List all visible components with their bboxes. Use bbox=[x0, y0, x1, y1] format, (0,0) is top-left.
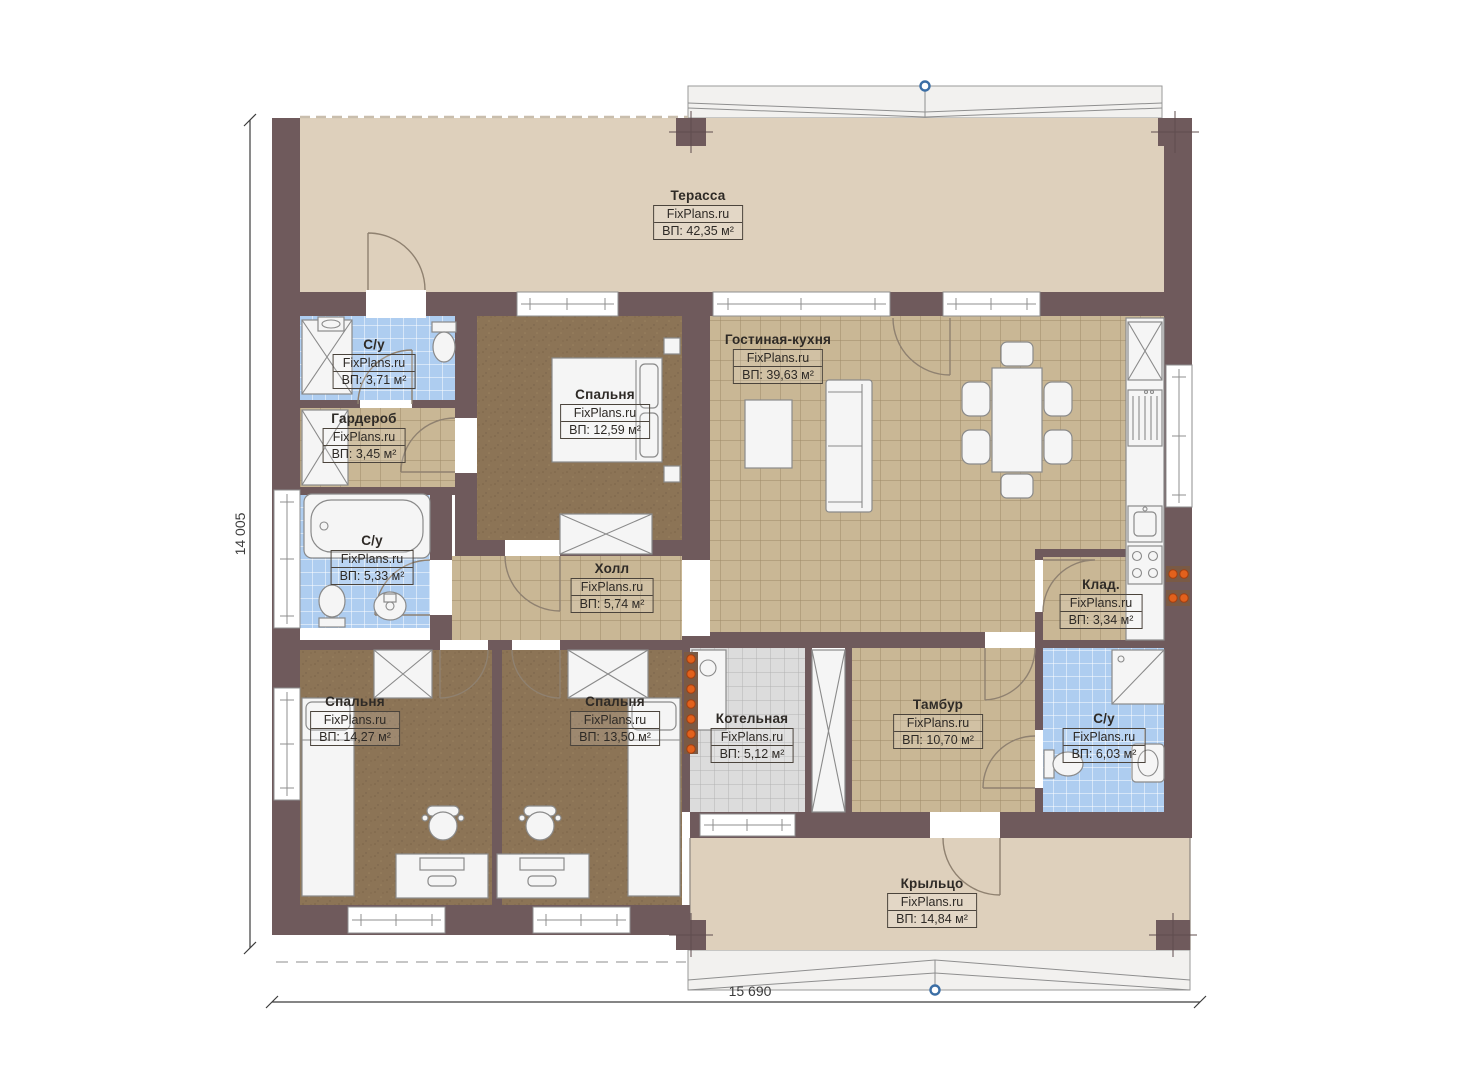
sink-icon bbox=[318, 317, 344, 331]
watermark-text: FixPlans.ru bbox=[734, 350, 822, 367]
room-name: Тамбур bbox=[893, 697, 983, 712]
room-name: Спальня bbox=[570, 694, 660, 709]
room-area: ВП: 6,03 м² bbox=[1064, 746, 1145, 762]
watermark-text: FixPlans.ru bbox=[888, 894, 976, 911]
room-area: ВП: 5,12 м² bbox=[712, 746, 793, 762]
room-name: Гостиная-кухня bbox=[725, 332, 831, 347]
room-info-box: FixPlans.ru ВП: 13,50 м² bbox=[570, 711, 660, 746]
room-name: С/у bbox=[1063, 711, 1146, 726]
watermark-text: FixPlans.ru bbox=[894, 715, 982, 732]
room-info-box: FixPlans.ru ВП: 14,84 м² bbox=[887, 893, 977, 928]
window bbox=[700, 814, 795, 836]
room-label-bathroom-left: С/у FixPlans.ru ВП: 5,33 м² bbox=[331, 533, 414, 585]
room-area: ВП: 5,74 м² bbox=[572, 596, 653, 612]
room-label-living-kitchen: Гостиная-кухня FixPlans.ru ВП: 39,63 м² bbox=[725, 332, 831, 384]
shower-icon bbox=[1112, 650, 1164, 704]
roof-marker-bottom bbox=[931, 986, 940, 995]
room-label-storage: Клад. FixPlans.ru ВП: 3,34 м² bbox=[1060, 577, 1143, 629]
window bbox=[274, 688, 300, 800]
room-area: ВП: 10,70 м² bbox=[894, 732, 982, 748]
room-area: ВП: 12,59 м² bbox=[561, 422, 649, 438]
window bbox=[943, 292, 1040, 316]
room-info-box: FixPlans.ru ВП: 5,74 м² bbox=[571, 578, 654, 613]
dimension-left: 14 005 bbox=[232, 513, 248, 556]
room-label-bedroom-middle: Спальня FixPlans.ru ВП: 13,50 м² bbox=[570, 694, 660, 746]
toilet-icon bbox=[319, 585, 345, 627]
room-info-box: FixPlans.ru ВП: 5,12 м² bbox=[711, 728, 794, 763]
room-name: Крыльцо bbox=[887, 876, 977, 891]
room-info-box: FixPlans.ru ВП: 3,71 м² bbox=[333, 354, 416, 389]
watermark-text: FixPlans.ru bbox=[572, 579, 653, 596]
room-label-porch: Крыльцо FixPlans.ru ВП: 14,84 м² bbox=[887, 876, 977, 928]
pedestal-sink-icon bbox=[374, 592, 406, 620]
watermark-text: FixPlans.ru bbox=[324, 429, 405, 446]
room-label-bedroom-top: Спальня FixPlans.ru ВП: 12,59 м² bbox=[560, 387, 650, 439]
room-area: ВП: 14,27 м² bbox=[311, 729, 399, 745]
floor-plan-canvas: Терасса FixPlans.ru ВП: 42,35 м² С/у Fix… bbox=[0, 0, 1474, 1080]
closet-icon bbox=[568, 650, 648, 698]
window bbox=[274, 490, 300, 628]
roof-marker-top bbox=[921, 82, 930, 91]
watermark-text: FixPlans.ru bbox=[1061, 595, 1142, 612]
room-name: Холл bbox=[571, 561, 654, 576]
room-area: ВП: 5,33 м² bbox=[332, 568, 413, 584]
roof-overhang-top bbox=[688, 82, 1162, 119]
closet-icon bbox=[812, 650, 845, 812]
room-name: Спальня bbox=[310, 694, 400, 709]
room-label-bathroom-right: С/у FixPlans.ru ВП: 6,03 м² bbox=[1063, 711, 1146, 763]
watermark-text: FixPlans.ru bbox=[332, 551, 413, 568]
floor-plan-svg bbox=[0, 0, 1474, 1080]
watermark-text: FixPlans.ru bbox=[311, 712, 399, 729]
room-name: С/у bbox=[331, 533, 414, 548]
window bbox=[533, 907, 630, 933]
closet-icon bbox=[560, 514, 652, 554]
room-area: ВП: 42,35 м² bbox=[654, 223, 742, 239]
toilet-icon bbox=[432, 322, 456, 362]
room-label-vestibule: Тамбур FixPlans.ru ВП: 10,70 м² bbox=[893, 697, 983, 749]
closet-icon bbox=[374, 650, 432, 698]
room-info-box: FixPlans.ru ВП: 42,35 м² bbox=[653, 205, 743, 240]
room-label-boiler: Котельная FixPlans.ru ВП: 5,12 м² bbox=[711, 711, 794, 763]
room-label-bathroom-top: С/у FixPlans.ru ВП: 3,71 м² bbox=[333, 337, 416, 389]
room-name: С/у bbox=[333, 337, 416, 352]
room-label-bedroom-left: Спальня FixPlans.ru ВП: 14,27 м² bbox=[310, 694, 400, 746]
sofa-icon bbox=[826, 380, 872, 512]
room-info-box: FixPlans.ru ВП: 10,70 м² bbox=[893, 714, 983, 749]
room-info-box: FixPlans.ru ВП: 3,34 м² bbox=[1060, 594, 1143, 629]
window bbox=[517, 292, 618, 316]
room-name: Клад. bbox=[1060, 577, 1143, 592]
room-info-box: FixPlans.ru ВП: 6,03 м² bbox=[1063, 728, 1146, 763]
room-area: ВП: 14,84 м² bbox=[888, 911, 976, 927]
room-info-box: FixPlans.ru ВП: 39,63 м² bbox=[733, 349, 823, 384]
room-name: Гардероб bbox=[323, 411, 406, 426]
dimension-bottom: 15 690 bbox=[729, 983, 772, 999]
watermark-text: FixPlans.ru bbox=[654, 206, 742, 223]
room-area: ВП: 3,34 м² bbox=[1061, 612, 1142, 628]
radiator-strip bbox=[684, 652, 698, 754]
watermark-text: FixPlans.ru bbox=[334, 355, 415, 372]
window bbox=[1166, 365, 1192, 507]
watermark-text: FixPlans.ru bbox=[561, 405, 649, 422]
room-name: Котельная bbox=[711, 711, 794, 726]
watermark-text: FixPlans.ru bbox=[571, 712, 659, 729]
room-area: ВП: 3,71 м² bbox=[334, 372, 415, 388]
room-name: Терасса bbox=[653, 188, 743, 203]
coffee-table-icon bbox=[745, 400, 792, 468]
room-info-box: FixPlans.ru ВП: 12,59 м² bbox=[560, 404, 650, 439]
room-label-terrace: Терасса FixPlans.ru ВП: 42,35 м² bbox=[653, 188, 743, 240]
room-area: ВП: 13,50 м² bbox=[571, 729, 659, 745]
watermark-text: FixPlans.ru bbox=[712, 729, 793, 746]
room-label-wardrobe: Гардероб FixPlans.ru ВП: 3,45 м² bbox=[323, 411, 406, 463]
room-area: ВП: 3,45 м² bbox=[324, 446, 405, 462]
room-info-box: FixPlans.ru ВП: 3,45 м² bbox=[323, 428, 406, 463]
room-area: ВП: 39,63 м² bbox=[734, 367, 822, 383]
window bbox=[348, 907, 445, 933]
room-label-hall: Холл FixPlans.ru ВП: 5,74 м² bbox=[571, 561, 654, 613]
room-info-box: FixPlans.ru ВП: 5,33 м² bbox=[331, 550, 414, 585]
window bbox=[713, 292, 890, 316]
desk-icon bbox=[396, 854, 488, 898]
desk-icon bbox=[497, 854, 589, 898]
watermark-text: FixPlans.ru bbox=[1064, 729, 1145, 746]
room-info-box: FixPlans.ru ВП: 14,27 м² bbox=[310, 711, 400, 746]
room-name: Спальня bbox=[560, 387, 650, 402]
